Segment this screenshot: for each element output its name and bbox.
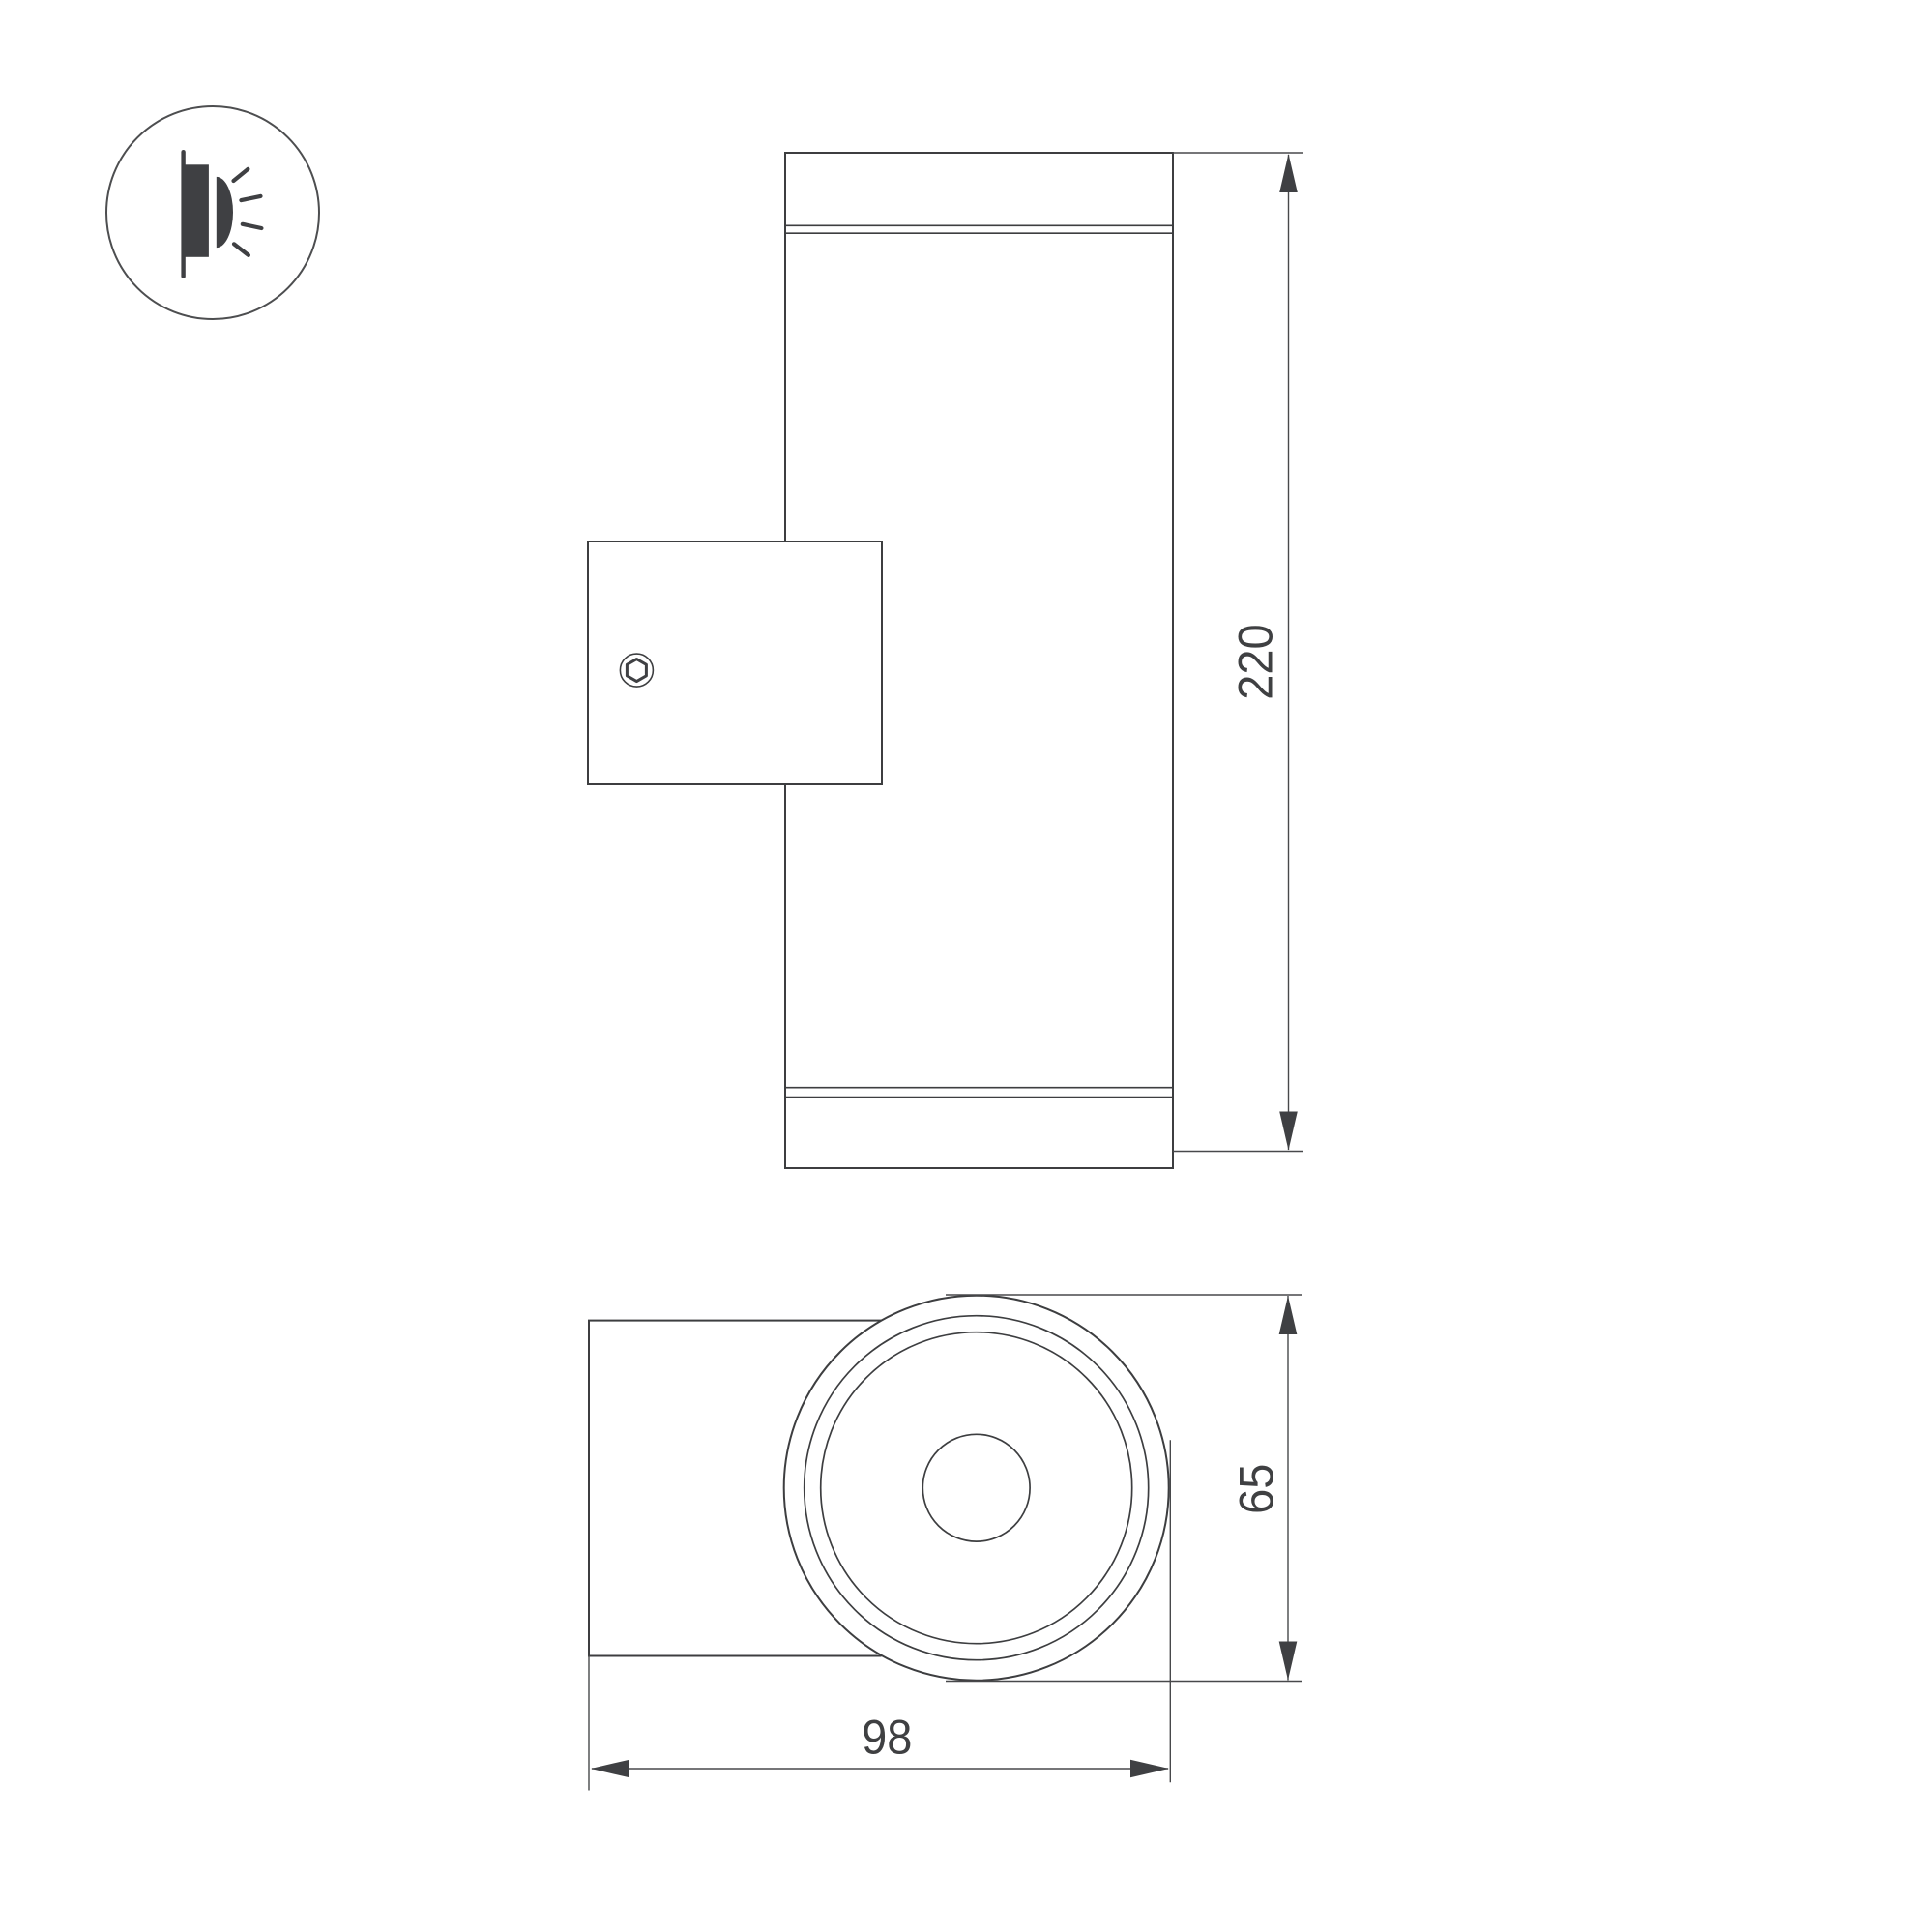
svg-text:98: 98 [862, 1711, 912, 1765]
svg-text:65: 65 [1230, 1464, 1284, 1514]
svg-text:220: 220 [1229, 624, 1283, 699]
